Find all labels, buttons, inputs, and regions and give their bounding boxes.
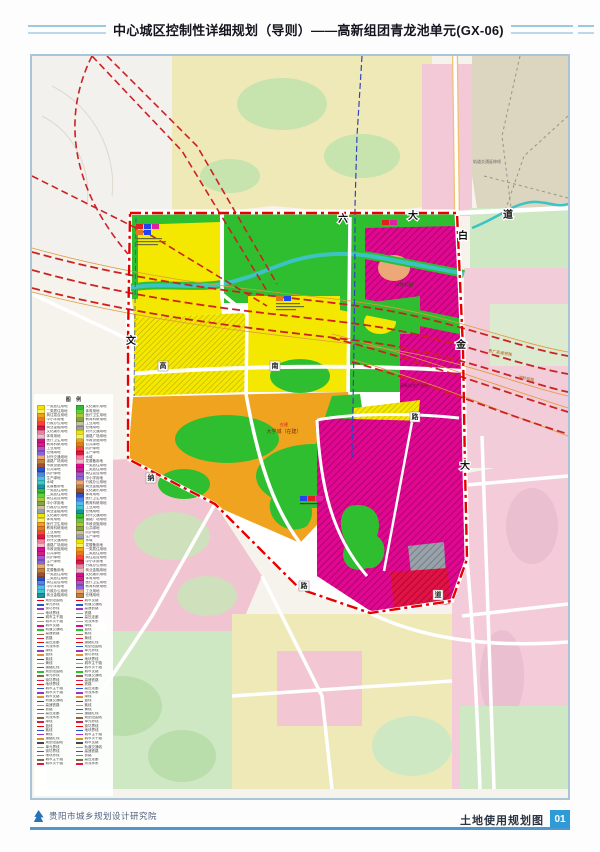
institute-logo-icon [32,809,45,823]
under-construction-tag: 在建 [280,421,288,427]
road-char: 白 [458,229,468,242]
park-label: 山体公园 [395,281,413,288]
legend-title: 图 例 [37,396,112,404]
map-sheet-name: 土地使用规划图 [460,812,544,828]
legend-symbol-item: 河流水系 [76,762,112,766]
road-char: 道 [503,208,513,221]
title-rule-end [578,25,594,34]
legend-swatch-item: 仓储用地 [76,593,112,597]
road-char: 大 [460,459,470,472]
title-rule-left [28,25,106,34]
road-char: 大 [408,209,418,222]
road-plate-char: 南 [272,361,279,370]
road-plate-char: 路 [412,412,420,421]
road-plate-char: 纳 [148,473,155,482]
institute-name: 贵阳市城乡规划设计研究院 [49,810,157,822]
title-rule-right [511,25,573,34]
map-frame: 六 大 道 白 金 大 文 高 南 纳 路 路 道 轨道交通延伸线 贵广高速铁路… [30,54,570,800]
road-plate-char: 高 [160,361,167,370]
road-char: 金 [455,338,467,351]
document-header: 中心城区控制性详细规划（导则）——高新组团青龙池单元(GX-06) [28,18,594,40]
road-plate-char: 路 [301,581,309,590]
road-plate-char: 道 [435,590,442,599]
document-footer: 贵阳市城乡规划设计研究院 土地使用规划图 01 [30,806,570,846]
rail-transit-label: 轨道交通延伸线 [473,158,501,164]
legend-panel: 图 例 一类居住用地二类居住用地商住混合用地中小学用地行政办公用地商业金融用地文… [34,394,113,796]
legend-swatch-item: 商业金融用地 [37,593,73,597]
footer-left: 贵阳市城乡规划设计研究院 [32,809,157,823]
road-char: 六 [338,212,348,225]
legend-body: 一类居住用地二类居住用地商住混合用地中小学用地行政办公用地商业金融用地文化娱乐用… [37,405,112,766]
page-number-badge: 01 [550,810,570,828]
legend-symbol-item: 城市次干路 [37,762,73,766]
road-char: 文 [126,334,137,347]
university-label: 大学城（在建） [266,428,301,435]
plan-document-page: 中心城区控制性详细规划（导则）——高新组团青龙池单元(GX-06) [0,0,600,852]
page-title: 中心城区控制性详细规划（导则）——高新组团青龙池单元(GX-06) [113,20,504,39]
industry-label: 高新技术产业园 [400,382,428,388]
